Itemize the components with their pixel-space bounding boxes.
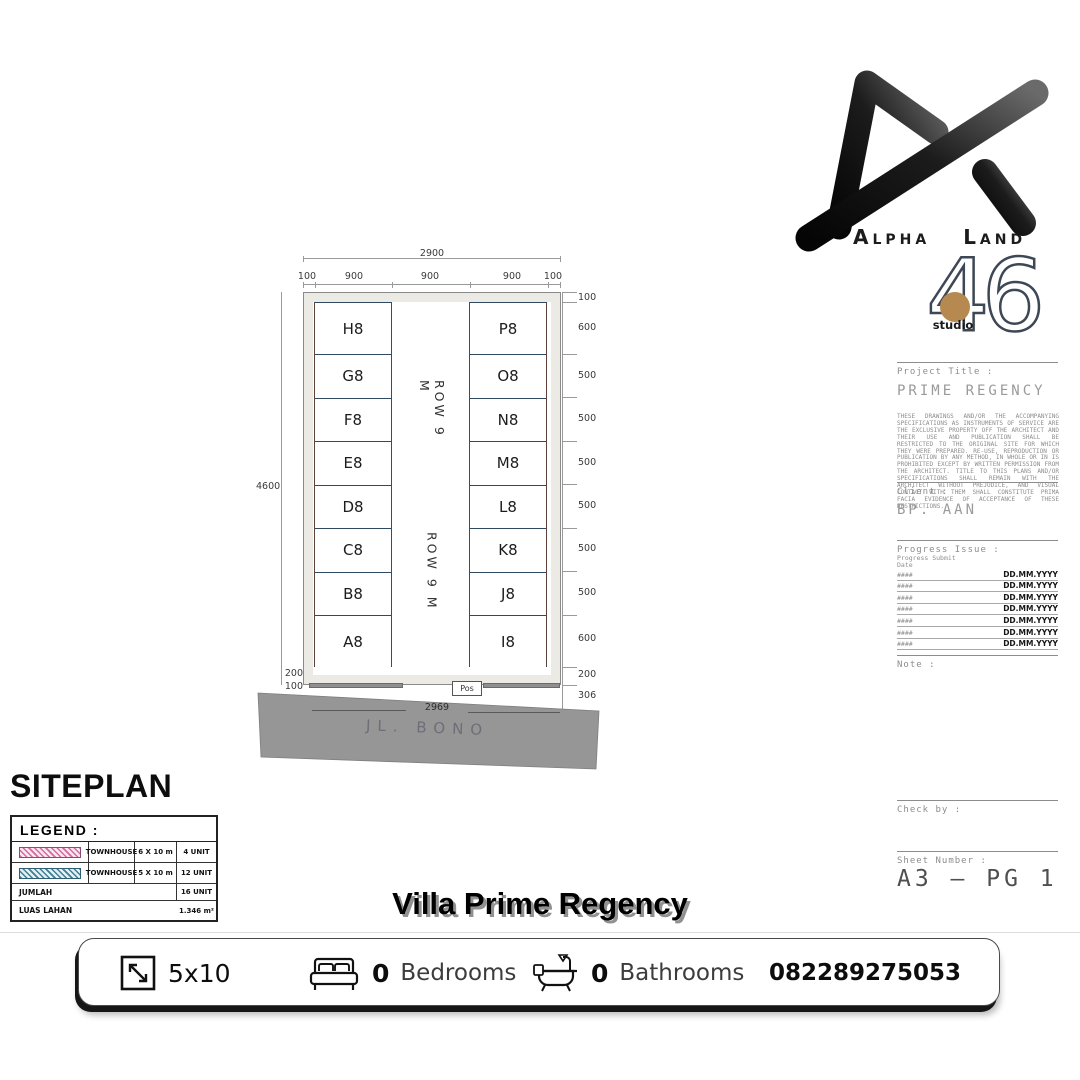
lot-cell: E8 (315, 442, 391, 486)
legend-type: TOWNHOUSE (89, 863, 135, 883)
row-label-upper: ROW 9 M (423, 380, 441, 444)
alphaland-logo-mark: 46 studio (780, 30, 1080, 350)
dim-top-seg: 900 (492, 271, 532, 282)
dim-right: 500 (578, 370, 596, 381)
lot-cell: F8 (315, 399, 391, 443)
lot-cell: N8 (470, 399, 546, 443)
lot-cell: L8 (470, 486, 546, 530)
dim-right: 500 (578, 413, 596, 424)
lot-cell: H8 (315, 303, 391, 355)
note-label: Note : (897, 660, 936, 670)
progress-row: #### DD.MM.YYYY (897, 627, 1058, 639)
brand-wordmark-land: Land (963, 225, 1026, 249)
bathtub-icon (532, 951, 580, 995)
brand-wordmark-alpha: Alpha (853, 225, 930, 249)
lot-cell: M8 (470, 442, 546, 486)
dim-right: 500 (578, 457, 596, 468)
legend-units: 4 UNIT (177, 842, 216, 862)
bedrooms-label: Bedrooms (400, 960, 516, 986)
legend-row-area: LUAS LAHAN 1.346 m² (12, 901, 216, 920)
progress-table: Progress Submit Date #### DD.MM.YYYY ###… (897, 555, 1058, 650)
lot-cell: J8 (470, 573, 546, 617)
bathrooms-group: 0 Bathrooms (532, 939, 744, 1007)
dim-line (281, 292, 282, 685)
dim-right: 500 (578, 587, 596, 598)
legend-row-total: JUMLAH 16 UNIT (12, 884, 216, 901)
lot-cell: C8 (315, 529, 391, 573)
bedrooms-count: 0 (372, 959, 389, 988)
legend-title: LEGEND : (12, 817, 216, 842)
studio-number-glyph: 46 (926, 237, 1040, 350)
check-by-label: Check by : (897, 805, 961, 815)
bedrooms-group: 0 Bedrooms (307, 939, 516, 1007)
legend-total-label: JUMLAH (12, 884, 177, 900)
dim-line (562, 292, 563, 712)
progress-row: #### DD.MM.YYYY (897, 639, 1058, 651)
divider (897, 851, 1058, 852)
legend-size: 6 X 10 m (135, 842, 177, 862)
size-group: 5x10 (119, 939, 231, 1007)
legend-table: LEGEND : TOWNHOUSE 6 X 10 m 4 UNIT TOWNH… (10, 815, 218, 922)
lot-column-right: P8 O8 N8 M8 L8 K8 J8 I8 (469, 302, 547, 667)
dim-top-seg: 900 (410, 271, 450, 282)
progress-row: #### DD.MM.YYYY (897, 569, 1058, 581)
swatch-townhouse-6x10 (19, 847, 81, 858)
dim-right: 600 (578, 633, 596, 644)
legend-row: TOWNHOUSE 5 X 10 m 12 UNIT (12, 863, 216, 884)
progress-header-date: Date (897, 562, 1058, 569)
lot-cell: B8 (315, 573, 391, 617)
dim-line (468, 712, 560, 713)
lot-cell: D8 (315, 486, 391, 530)
lot-cell: A8 (315, 616, 391, 668)
sheet-number-label: Sheet Number : (897, 856, 987, 866)
dim-top-seg: 100 (287, 271, 327, 282)
divider (897, 482, 1058, 483)
dim-right: 600 (578, 322, 596, 333)
lot-cell: I8 (470, 616, 546, 668)
section-divider (0, 932, 1080, 933)
progress-row: #### DD.MM.YYYY (897, 592, 1058, 604)
brand-wordmark: Alpha Land (853, 225, 1026, 249)
divider (897, 800, 1058, 801)
property-info-bar: 5x10 0 Bedrooms (78, 938, 1000, 1006)
legend-area-value: 1.346 m² (177, 901, 216, 920)
swatch-townhouse-5x10 (19, 868, 81, 879)
legend-row: TOWNHOUSE 6 X 10 m 4 UNIT (12, 842, 216, 863)
legend-area-label: LUAS LAHAN (12, 901, 177, 920)
dim-bottom-total: 2969 (410, 702, 464, 713)
divider (897, 362, 1058, 363)
lot-cell: O8 (470, 355, 546, 399)
sheet-number: A3 — PG 1 (897, 866, 1058, 892)
bathrooms-label: Bathrooms (619, 960, 744, 986)
project-title-label: Project Title : (897, 367, 993, 377)
studio-label-glyph: studio (933, 318, 974, 332)
lot-column-left: H8 G8 F8 E8 D8 C8 B8 A8 (314, 302, 392, 667)
dim-right: 100 (578, 292, 596, 303)
dim-right: 200 (578, 669, 596, 680)
client-label: Client : (897, 487, 948, 497)
legend-type: TOWNHOUSE (89, 842, 135, 862)
dim-top-seg: 900 (334, 271, 374, 282)
client-name: BP. AAN (897, 502, 977, 518)
dim-top-seg: 100 (533, 271, 573, 282)
legend-size: 5 X 10 m (135, 863, 177, 883)
row-label-lower: ROW 9 M (423, 530, 441, 612)
divider (897, 540, 1058, 541)
progress-row: #### DD.MM.YYYY (897, 604, 1058, 616)
phone-number: 082289275053 (769, 939, 961, 1007)
dim-left-bottom: 200 (275, 668, 303, 679)
dim-right: 500 (578, 500, 596, 511)
dim-line (303, 284, 561, 285)
dimensions-icon (119, 954, 157, 992)
size-value: 5x10 (168, 959, 231, 988)
progress-row: #### DD.MM.YYYY (897, 615, 1058, 627)
dim-line (303, 258, 561, 259)
siteplan-flyer: 46 studio Alpha Land H8 G8 F8 E8 D8 C8 B… (0, 0, 1080, 1080)
dim-left-total: 4600 (256, 481, 280, 492)
progress-row: #### DD.MM.YYYY (897, 581, 1058, 593)
dim-line (312, 710, 406, 711)
dim-right: 500 (578, 543, 596, 554)
property-title: Villa Prime Regency (392, 886, 688, 922)
bed-icon (307, 952, 361, 994)
legend-total-value: 16 UNIT (177, 884, 216, 900)
project-title: PRIME REGENCY (897, 383, 1046, 399)
lot-cell: G8 (315, 355, 391, 399)
divider (897, 655, 1058, 656)
progress-header-submit: Progress Submit (897, 555, 1058, 562)
legend-units: 12 UNIT (177, 863, 216, 883)
siteplan-heading: SITEPLAN (10, 768, 172, 805)
bathrooms-count: 0 (591, 959, 608, 988)
lot-cell: P8 (470, 303, 546, 355)
lot-cell: K8 (470, 529, 546, 573)
